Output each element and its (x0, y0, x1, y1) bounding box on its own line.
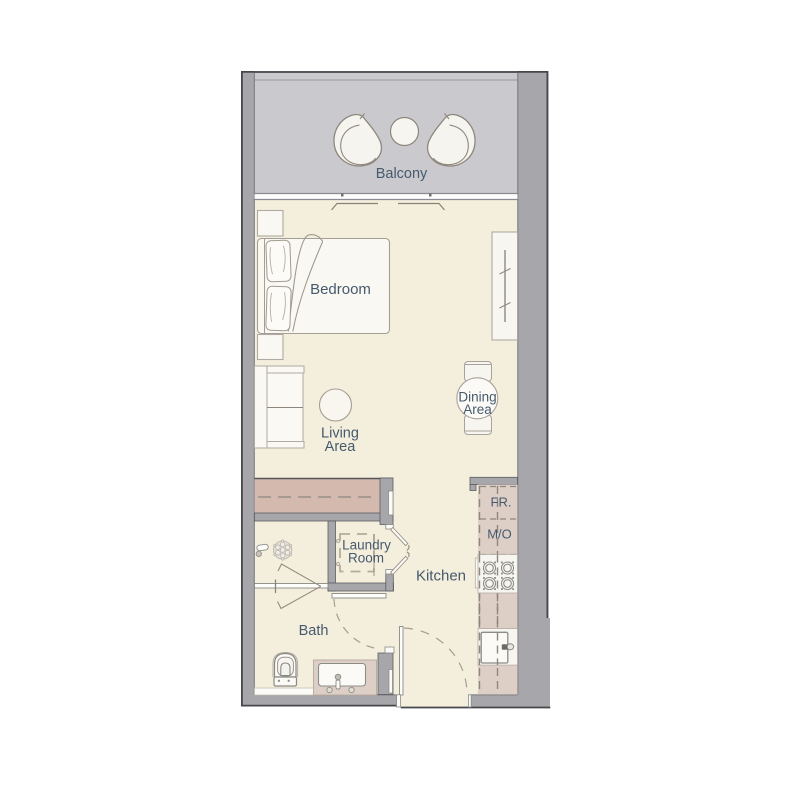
svg-text:Bedroom: Bedroom (310, 281, 371, 298)
svg-text:Room: Room (348, 551, 384, 566)
svg-text:M/O: M/O (487, 527, 512, 542)
svg-text:Balcony: Balcony (376, 166, 428, 182)
svg-text:Area: Area (463, 402, 492, 417)
svg-text:Kitchen: Kitchen (416, 568, 466, 585)
svg-text:FR.: FR. (491, 495, 512, 510)
svg-text:Bath: Bath (299, 623, 329, 639)
svg-text:Area: Area (325, 439, 357, 455)
